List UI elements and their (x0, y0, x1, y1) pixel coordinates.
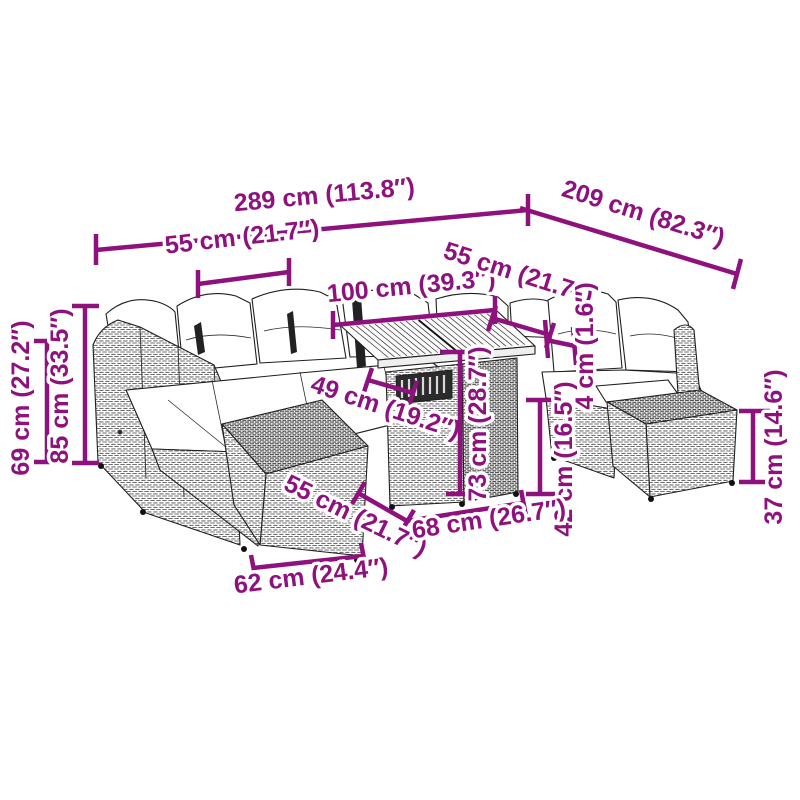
dim-label-table-height: 73 cm (28.7″) (464, 346, 492, 501)
dim-label-back-height-outer: 69 cm (27.2″) (7, 320, 35, 475)
dimension-diagram-canvas: 289 cm (113.8″) 209 cm (82.3″) 55 cm (21… (0, 0, 800, 800)
diagram-svg: 289 cm (113.8″) 209 cm (82.3″) 55 cm (21… (0, 0, 800, 800)
dim-label-ottoman-height: 37 cm (14.6″) (760, 369, 788, 524)
dim-label-back-height-total: 85 cm (33.5″) (46, 308, 74, 463)
